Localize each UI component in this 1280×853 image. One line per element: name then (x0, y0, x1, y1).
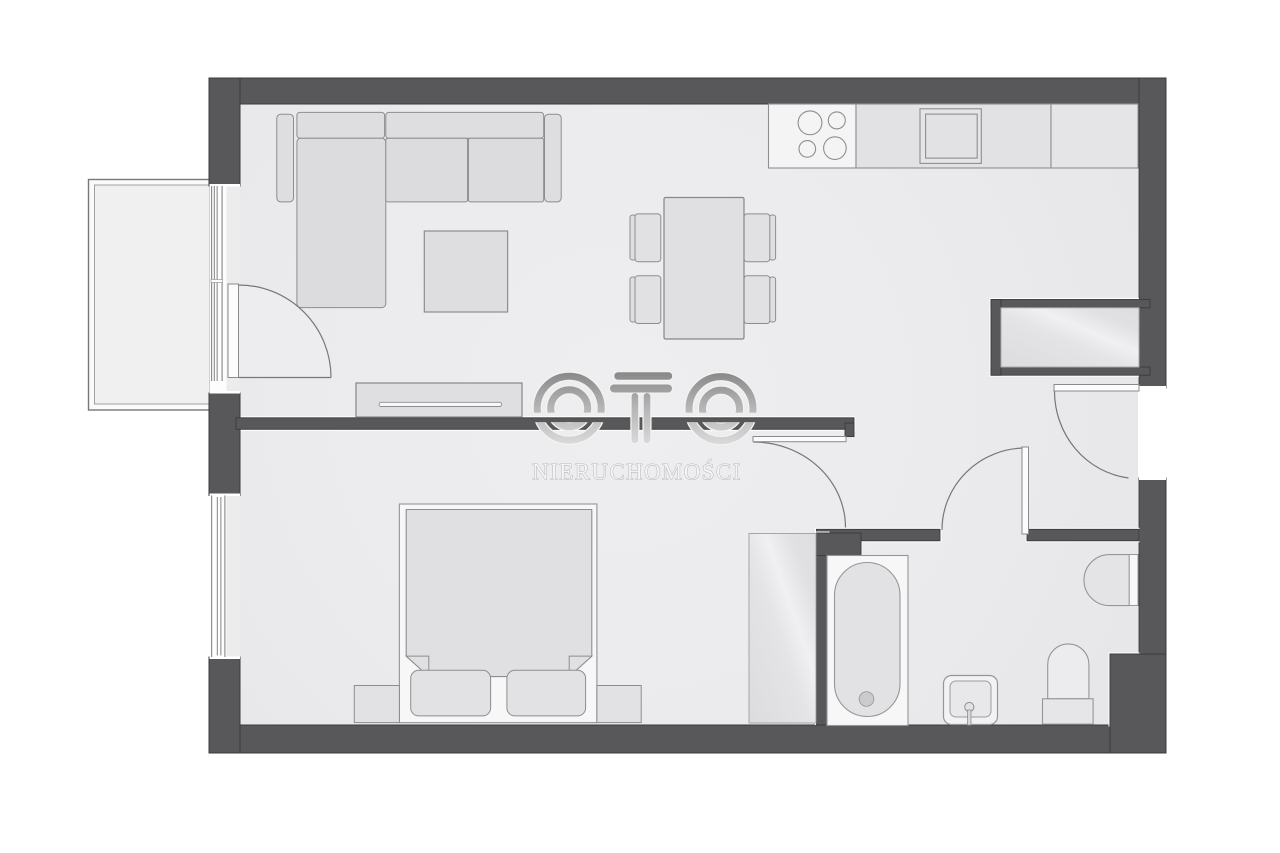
svg-text:NIERUCHOMOŚCI: NIERUCHOMOŚCI (532, 459, 742, 485)
